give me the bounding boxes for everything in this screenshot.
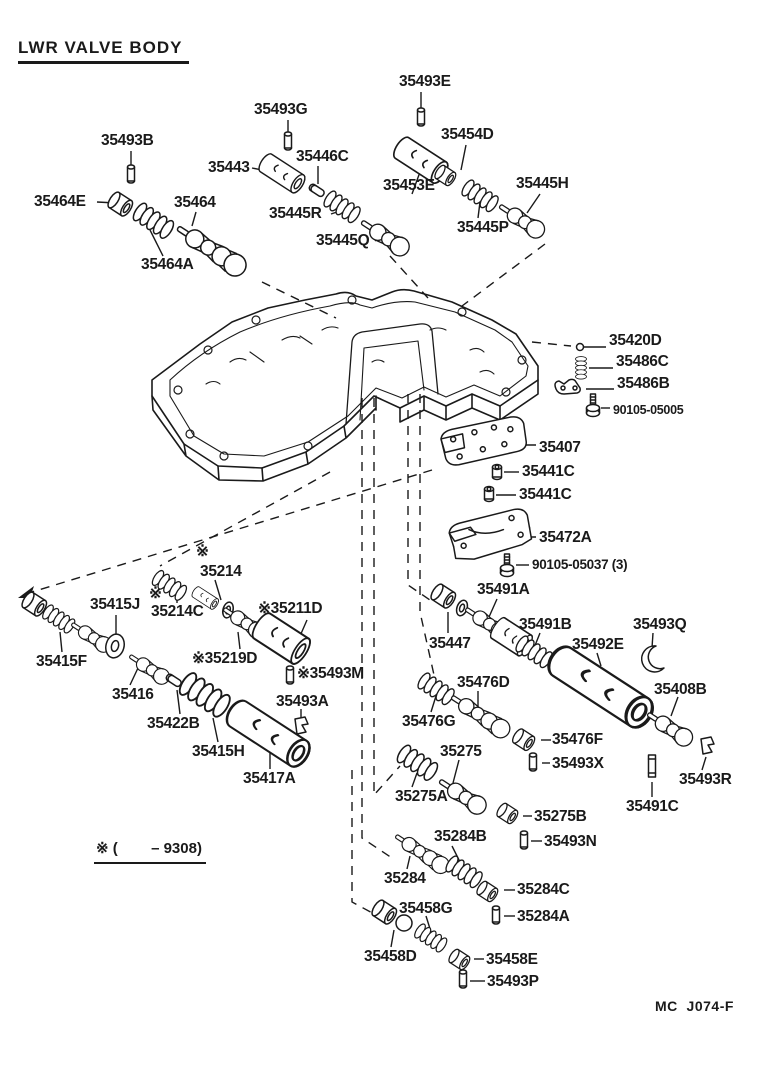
part-label-35493Q: 35493Q xyxy=(633,617,686,633)
part-label-35458G: 35458G xyxy=(399,901,452,917)
part-label-35219D: ※35219D xyxy=(192,651,257,667)
part-label-35417A: 35417A xyxy=(243,771,296,787)
part-35415F-spring-drawing xyxy=(41,603,77,634)
part-35447-drawing xyxy=(429,582,458,610)
part-label-35454D: 35454D xyxy=(441,127,494,143)
part-label-35486C: 35486C xyxy=(616,354,669,370)
part-label-35445H: 35445H xyxy=(516,176,569,192)
part-label-35407: 35407 xyxy=(539,440,581,456)
part-35491C-drawing xyxy=(649,755,656,777)
part-35284B-drawing xyxy=(444,854,485,889)
part-label-35441C: 35441C xyxy=(522,464,575,480)
part-label-35441C: 35441C xyxy=(519,487,572,503)
part-35416-drawing xyxy=(126,649,173,687)
part-label-35458E: 35458E xyxy=(486,952,538,968)
part-label-35491A: 35491A xyxy=(477,582,530,598)
part-35493Q-drawing xyxy=(642,646,664,672)
part-label-35415J: 35415J xyxy=(90,597,140,613)
part-label-35491B: 35491B xyxy=(519,617,572,633)
part-label-35472A: 35472A xyxy=(539,530,592,546)
part-35445R-drawing xyxy=(322,189,363,224)
part-label-35415F: 35415F xyxy=(36,654,87,670)
part-label-35493G: 35493G xyxy=(254,102,307,118)
part-35464E-drawing xyxy=(106,190,135,218)
part-label-35284B: 35284B xyxy=(434,829,487,845)
part-35493B-drawing xyxy=(128,165,135,183)
part-label-35493A: 35493A xyxy=(276,694,329,710)
part-label-35493P: 35493P xyxy=(487,974,539,990)
part-35458D-ball-drawing xyxy=(396,915,412,931)
part-label-: ※ xyxy=(196,544,209,560)
part-35407-drawing xyxy=(439,415,528,466)
part-label-35486B: 35486B xyxy=(617,376,670,392)
part-35458D-cup-drawing xyxy=(370,898,399,926)
part-35408B-drawing xyxy=(643,707,696,750)
part-label-35492E: 35492E xyxy=(572,637,624,653)
part-35446C-drawing xyxy=(308,183,325,198)
part-35476F-drawing xyxy=(511,727,537,752)
part-label-35275: 35275 xyxy=(440,744,482,760)
part-35493G-drawing xyxy=(285,132,292,150)
part-label-35284C: 35284C xyxy=(517,882,570,898)
part-label-35445Q: 35445Q xyxy=(316,233,369,249)
part-35420D-drawing xyxy=(577,344,584,351)
part-35422B-drawing xyxy=(165,673,182,688)
part-35275B-drawing xyxy=(495,802,520,825)
part-label-35476G: 35476G xyxy=(402,714,455,730)
part-label-35284: 35284 xyxy=(384,871,426,887)
part-label-35464E: 35464E xyxy=(34,194,86,210)
part-35458G-drawing xyxy=(413,922,449,953)
part-label-90105050373: 90105-05037 (3) xyxy=(532,558,627,572)
part-label-35445P: 35445P xyxy=(457,220,509,236)
part-label-35420D: 35420D xyxy=(609,333,662,349)
part-35493P-drawing xyxy=(460,970,467,988)
part-label-35464A: 35464A xyxy=(141,257,194,273)
part-label-35493E: 35493E xyxy=(399,74,451,90)
part-90105-05037-drawing xyxy=(501,554,514,577)
part-label-35443: 35443 xyxy=(208,160,250,176)
part-label-35458D: 35458D xyxy=(364,949,417,965)
part-35493E-drawing xyxy=(418,108,425,126)
part-label-35214C: 35214C xyxy=(151,604,204,620)
part-35445P-drawing xyxy=(460,178,501,213)
part-35493X-drawing xyxy=(530,753,537,771)
part-label-35211D: ※35211D xyxy=(258,601,322,617)
part-label-35284A: 35284A xyxy=(517,909,570,925)
part-label-35408B: 35408B xyxy=(654,682,707,698)
part-35493R-drawing xyxy=(701,737,714,754)
part-35476D-drawing xyxy=(447,689,514,741)
part-label-35491C: 35491C xyxy=(626,799,679,815)
part-label-35275A: 35275A xyxy=(395,789,448,805)
part-label-35275B: 35275B xyxy=(534,809,587,825)
footnote: ※ ( – 9308) xyxy=(94,839,206,864)
part-35211D-drawing xyxy=(249,610,313,666)
part-label-35416: 35416 xyxy=(112,687,154,703)
part-label-35476F: 35476F xyxy=(552,732,603,748)
doc-code: MC J074-F xyxy=(655,998,734,1014)
part-35441C-2-drawing xyxy=(485,487,494,502)
part-35275A-drawing xyxy=(395,743,440,782)
part-35441C-drawing xyxy=(493,465,502,480)
part-35284A-drawing xyxy=(493,906,500,924)
part-label-35214: 35214 xyxy=(200,564,242,580)
part-35464-spring-drawing xyxy=(131,201,176,240)
part-35493M-drawing xyxy=(287,666,294,684)
part-label-35493M: ※35493M xyxy=(297,666,364,682)
part-35486C-drawing xyxy=(576,357,587,380)
part-35415H-drawing xyxy=(176,670,233,719)
part-35476G-drawing xyxy=(416,671,457,706)
part-label-35453E: 35453E xyxy=(383,178,435,194)
part-label-35445R: 35445R xyxy=(269,206,322,222)
part-label-35446C: 35446C xyxy=(296,149,349,165)
part-label-35493R: 35493R xyxy=(679,772,732,788)
diagram-canvas xyxy=(0,0,776,1072)
part-35472A-drawing xyxy=(447,507,533,562)
part-35486B-drawing xyxy=(555,379,580,394)
part-label-35476D: 35476D xyxy=(457,675,510,691)
part-35493N-drawing xyxy=(521,831,528,849)
part-label-35422B: 35422B xyxy=(147,716,200,732)
part-label-35493X: 35493X xyxy=(552,756,604,772)
diagram-page: LWR VALVE BODY xyxy=(0,0,776,1072)
part-35492E-drawing xyxy=(543,642,657,732)
part-label-35415H: 35415H xyxy=(192,744,245,760)
part-35415J-drawing xyxy=(103,632,127,660)
part-90105-05005-drawing xyxy=(587,394,600,417)
part-label-35493N: 35493N xyxy=(544,834,597,850)
part-35493A-drawing xyxy=(295,717,308,734)
part-label-9010505005: 90105-05005 xyxy=(613,404,683,417)
part-label-35493B: 35493B xyxy=(101,133,154,149)
part-label-: ※ xyxy=(149,586,162,602)
part-label-35464: 35464 xyxy=(174,195,216,211)
part-35458E-drawing xyxy=(447,948,472,971)
part-label-35447: 35447 xyxy=(429,636,471,652)
